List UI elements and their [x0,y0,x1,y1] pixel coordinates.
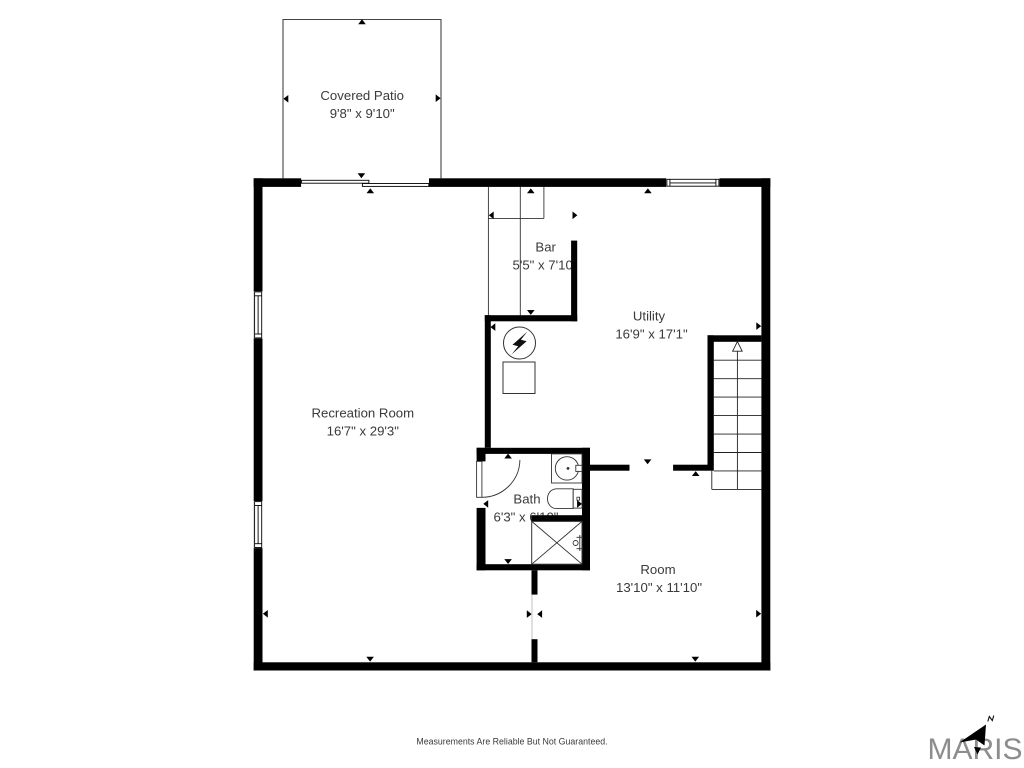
svg-text:Covered Patio: Covered Patio [320,88,404,103]
svg-text:9'8" x 9'10": 9'8" x 9'10" [330,106,395,121]
svg-text:Bar: Bar [535,239,556,254]
svg-text:Room: Room [640,562,675,577]
svg-text:Measurements Are Reliable But: Measurements Are Reliable But Not Guaran… [416,737,607,747]
svg-text:16'7" x 29'3": 16'7" x 29'3" [327,423,400,438]
svg-text:Bath: Bath [513,491,540,506]
svg-text:Utility: Utility [633,309,666,324]
svg-text:5'5" x 7'10": 5'5" x 7'10" [513,257,578,272]
svg-text:13'10" x 11'10": 13'10" x 11'10" [616,580,702,595]
svg-text:16'9" x 17'1": 16'9" x 17'1" [615,327,688,342]
svg-text:Recreation Room: Recreation Room [311,405,414,420]
